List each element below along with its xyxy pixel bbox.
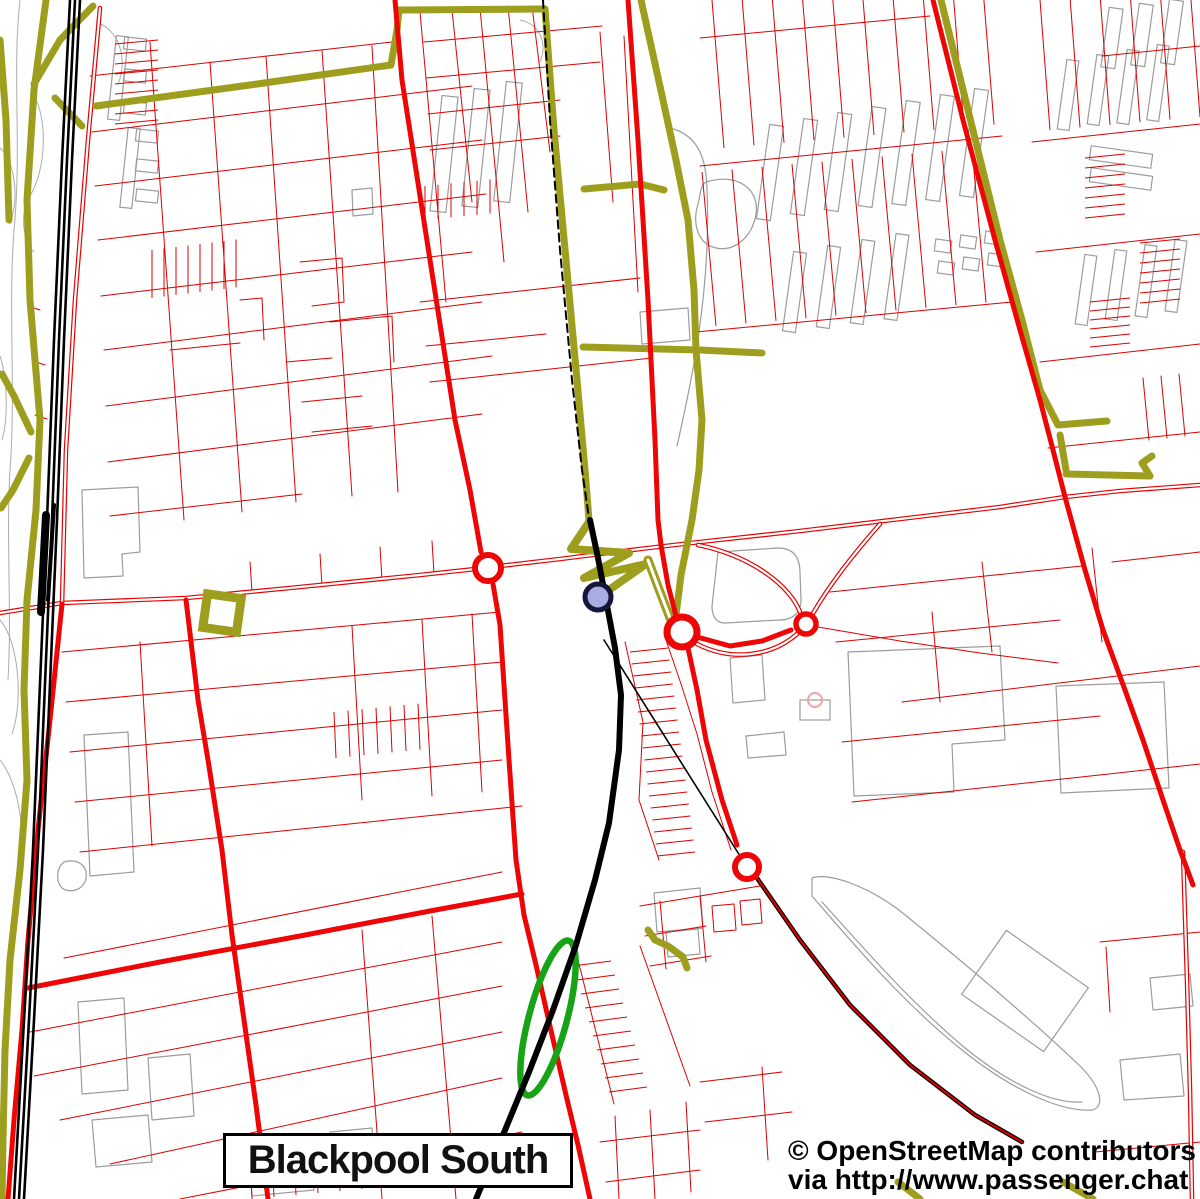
attribution-line-1: © OpenStreetMap contributors [788, 1136, 1196, 1165]
contour-lines [0, 0, 562, 900]
map-viewport: Blackpool South © OpenStreetMap contribu… [0, 0, 1200, 1199]
location-marker[interactable] [585, 584, 611, 610]
map-canvas[interactable] [0, 0, 1200, 1199]
attribution-line-2[interactable]: via http://www.passenger.chat [788, 1165, 1196, 1194]
road-southeast-over [757, 878, 1022, 1142]
railway-thin-diagonal [604, 640, 747, 867]
railway-southeast [757, 878, 1022, 1142]
roundabouts [475, 555, 816, 879]
station-name-label: Blackpool South [223, 1133, 573, 1188]
map-attribution: © OpenStreetMap contributors via http://… [788, 1136, 1196, 1194]
